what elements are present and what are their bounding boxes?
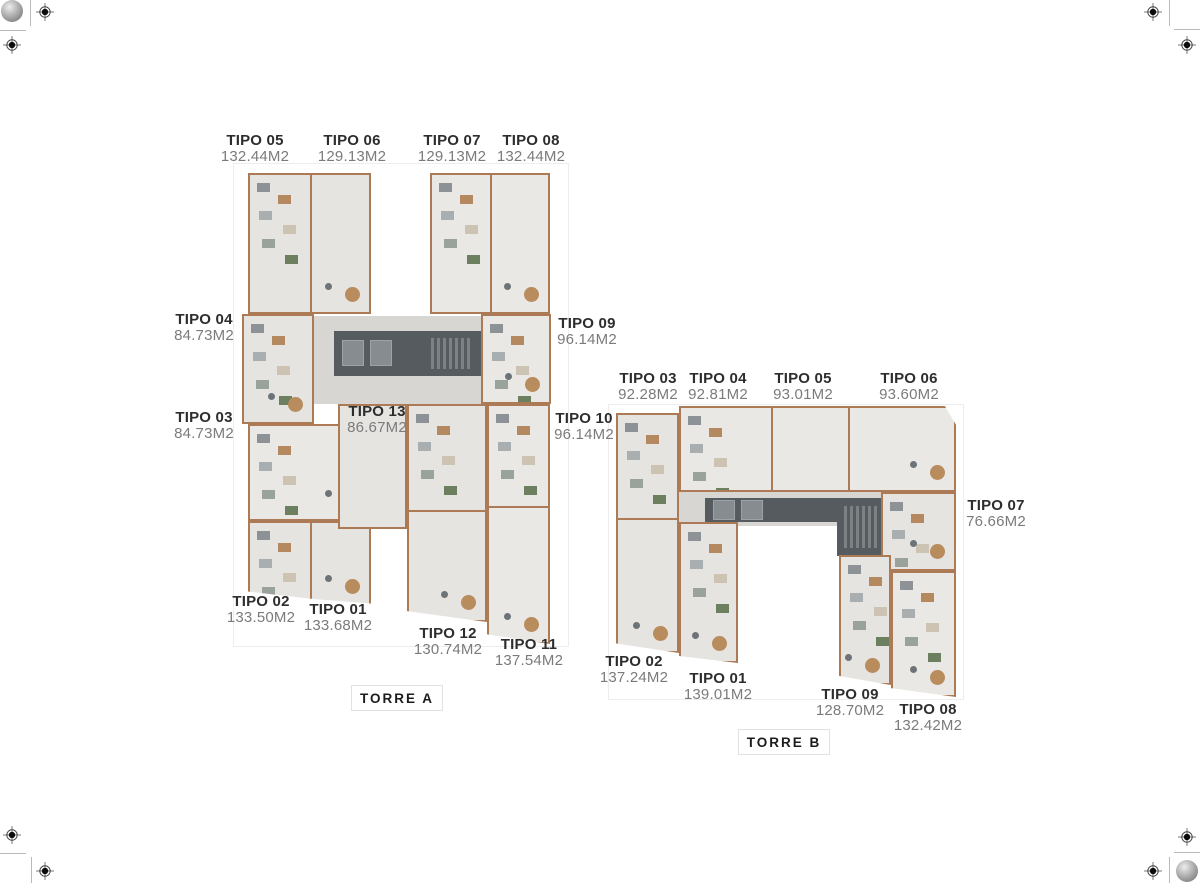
elevator-core — [705, 498, 837, 522]
unit-divider — [848, 408, 850, 490]
unit-area: 132.44M2 — [497, 149, 565, 165]
unit-area: 84.73M2 — [174, 426, 234, 442]
stairs — [431, 338, 473, 369]
unit-label-a-tipo-13: TIPO 13 86.67M2 — [347, 404, 407, 436]
unit-block-tipo01 — [679, 522, 738, 663]
unit-type: TIPO 09 — [816, 687, 884, 703]
unit-area: 130.74M2 — [414, 642, 482, 658]
unit-block-tipo05-06 — [248, 173, 371, 314]
torre-a-title: TORRE A — [351, 685, 443, 711]
unit-area: 93.01M2 — [773, 387, 833, 403]
unit-label-a-tipo-11: TIPO 11 137.54M2 — [495, 637, 563, 669]
elevator-core — [334, 331, 483, 376]
unit-area: 132.42M2 — [894, 718, 962, 734]
unit-type: TIPO 04 — [174, 312, 234, 328]
unit-area: 76.66M2 — [966, 514, 1026, 530]
unit-label-a-tipo-06: TIPO 06 129.13M2 — [318, 133, 386, 165]
crop-line — [0, 30, 26, 31]
unit-type: TIPO 11 — [495, 637, 563, 653]
unit-label-a-tipo-08: TIPO 08 132.44M2 — [497, 133, 565, 165]
registration-crosshair-icon — [1178, 828, 1196, 846]
unit-type: TIPO 06 — [318, 133, 386, 149]
unit-divider — [490, 175, 492, 312]
unit-area: 129.13M2 — [418, 149, 486, 165]
unit-type: TIPO 08 — [497, 133, 565, 149]
registration-crosshair-icon — [36, 862, 54, 880]
unit-label-a-tipo-04: TIPO 04 84.73M2 — [174, 312, 234, 344]
unit-area: 86.67M2 — [347, 420, 407, 436]
unit-type: TIPO 02 — [227, 594, 295, 610]
unit-area: 129.13M2 — [318, 149, 386, 165]
unit-area: 93.60M2 — [879, 387, 939, 403]
unit-area: 96.14M2 — [557, 332, 617, 348]
crop-line — [1169, 0, 1170, 26]
unit-block-tipo12 — [407, 404, 487, 622]
unit-label-a-tipo-12: TIPO 12 130.74M2 — [414, 626, 482, 658]
unit-area: 139.01M2 — [684, 687, 752, 703]
crop-line — [1174, 29, 1200, 30]
elevator — [741, 500, 763, 520]
unit-area: 84.73M2 — [174, 328, 234, 344]
unit-type: TIPO 06 — [879, 371, 939, 387]
unit-type: TIPO 03 — [618, 371, 678, 387]
unit-divider — [489, 506, 548, 508]
unit-type: TIPO 05 — [773, 371, 833, 387]
unit-label-a-tipo-05: TIPO 05 132.44M2 — [221, 133, 289, 165]
elevator — [342, 340, 364, 366]
unit-label-a-tipo-02: TIPO 02 133.50M2 — [227, 594, 295, 626]
unit-type: TIPO 05 — [221, 133, 289, 149]
stair-core — [837, 498, 886, 556]
unit-block-tipo04-05-06 — [679, 406, 956, 492]
unit-type: TIPO 13 — [347, 404, 407, 420]
unit-area: 137.54M2 — [495, 653, 563, 669]
unit-area: 92.81M2 — [688, 387, 748, 403]
unit-block-tipo03-02 — [616, 413, 679, 653]
unit-label-a-tipo-10: TIPO 10 96.14M2 — [554, 411, 614, 443]
unit-label-a-tipo-09: TIPO 09 96.14M2 — [557, 316, 617, 348]
unit-block-tipo09 — [481, 314, 551, 404]
unit-divider — [771, 408, 773, 490]
unit-label-b-tipo-06: TIPO 06 93.60M2 — [879, 371, 939, 403]
unit-block-tipo07-08 — [430, 173, 550, 314]
unit-label-b-tipo-08: TIPO 08 132.42M2 — [894, 702, 962, 734]
unit-divider — [310, 523, 312, 604]
unit-type: TIPO 02 — [600, 654, 668, 670]
unit-area: 137.24M2 — [600, 670, 668, 686]
unit-type: TIPO 08 — [894, 702, 962, 718]
registration-crosshair-icon — [36, 3, 54, 21]
torre-a-title-text: TORRE A — [360, 691, 434, 706]
unit-area: 133.68M2 — [304, 618, 372, 634]
unit-area: 92.28M2 — [618, 387, 678, 403]
unit-label-b-tipo-09: TIPO 09 128.70M2 — [816, 687, 884, 719]
registration-crosshair-icon — [1144, 3, 1162, 21]
torre-b-title: TORRE B — [738, 729, 830, 755]
unit-label-b-tipo-07: TIPO 07 76.66M2 — [966, 498, 1026, 530]
unit-type: TIPO 01 — [684, 671, 752, 687]
unit-block-tipo09 — [839, 555, 891, 685]
torre-b-title-text: TORRE B — [747, 735, 822, 750]
crop-line — [1174, 852, 1200, 853]
unit-divider — [409, 510, 485, 512]
elevator — [713, 500, 735, 520]
floorplan-sheet: TIPO 05 132.44M2 TIPO 06 129.13M2 TIPO 0… — [0, 0, 1200, 883]
unit-area: 132.44M2 — [221, 149, 289, 165]
unit-type: TIPO 10 — [554, 411, 614, 427]
crop-line — [0, 853, 26, 854]
print-calibration-ball-icon — [1176, 860, 1198, 882]
registration-crosshair-icon — [3, 36, 21, 54]
unit-block-tipo08 — [891, 571, 956, 697]
unit-type: TIPO 09 — [557, 316, 617, 332]
stairs — [844, 506, 879, 548]
unit-label-b-tipo-04: TIPO 04 92.81M2 — [688, 371, 748, 403]
crop-line — [1169, 857, 1170, 883]
unit-block-tipo10-11 — [487, 404, 550, 644]
unit-area: 133.50M2 — [227, 610, 295, 626]
unit-label-a-tipo-01: TIPO 01 133.68M2 — [304, 602, 372, 634]
unit-label-b-tipo-01: TIPO 01 139.01M2 — [684, 671, 752, 703]
unit-area: 128.70M2 — [816, 703, 884, 719]
unit-divider — [618, 518, 677, 520]
unit-label-a-tipo-03: TIPO 03 84.73M2 — [174, 410, 234, 442]
unit-block-tipo04 — [242, 314, 314, 424]
registration-crosshair-icon — [3, 826, 21, 844]
unit-label-a-tipo-07: TIPO 07 129.13M2 — [418, 133, 486, 165]
print-calibration-ball-icon — [1, 0, 23, 22]
elevator — [370, 340, 392, 366]
unit-type: TIPO 07 — [418, 133, 486, 149]
unit-area: 96.14M2 — [554, 427, 614, 443]
unit-divider — [310, 175, 312, 312]
unit-label-b-tipo-05: TIPO 05 93.01M2 — [773, 371, 833, 403]
unit-type: TIPO 03 — [174, 410, 234, 426]
unit-label-b-tipo-02: TIPO 02 137.24M2 — [600, 654, 668, 686]
unit-label-b-tipo-03: TIPO 03 92.28M2 — [618, 371, 678, 403]
unit-type: TIPO 07 — [966, 498, 1026, 514]
registration-crosshair-icon — [1144, 862, 1162, 880]
courtyard — [740, 526, 837, 698]
unit-type: TIPO 12 — [414, 626, 482, 642]
crop-line — [31, 857, 32, 883]
registration-crosshair-icon — [1178, 36, 1196, 54]
unit-block-tipo07 — [881, 492, 956, 571]
unit-type: TIPO 01 — [304, 602, 372, 618]
unit-type: TIPO 04 — [688, 371, 748, 387]
crop-line — [30, 0, 31, 26]
